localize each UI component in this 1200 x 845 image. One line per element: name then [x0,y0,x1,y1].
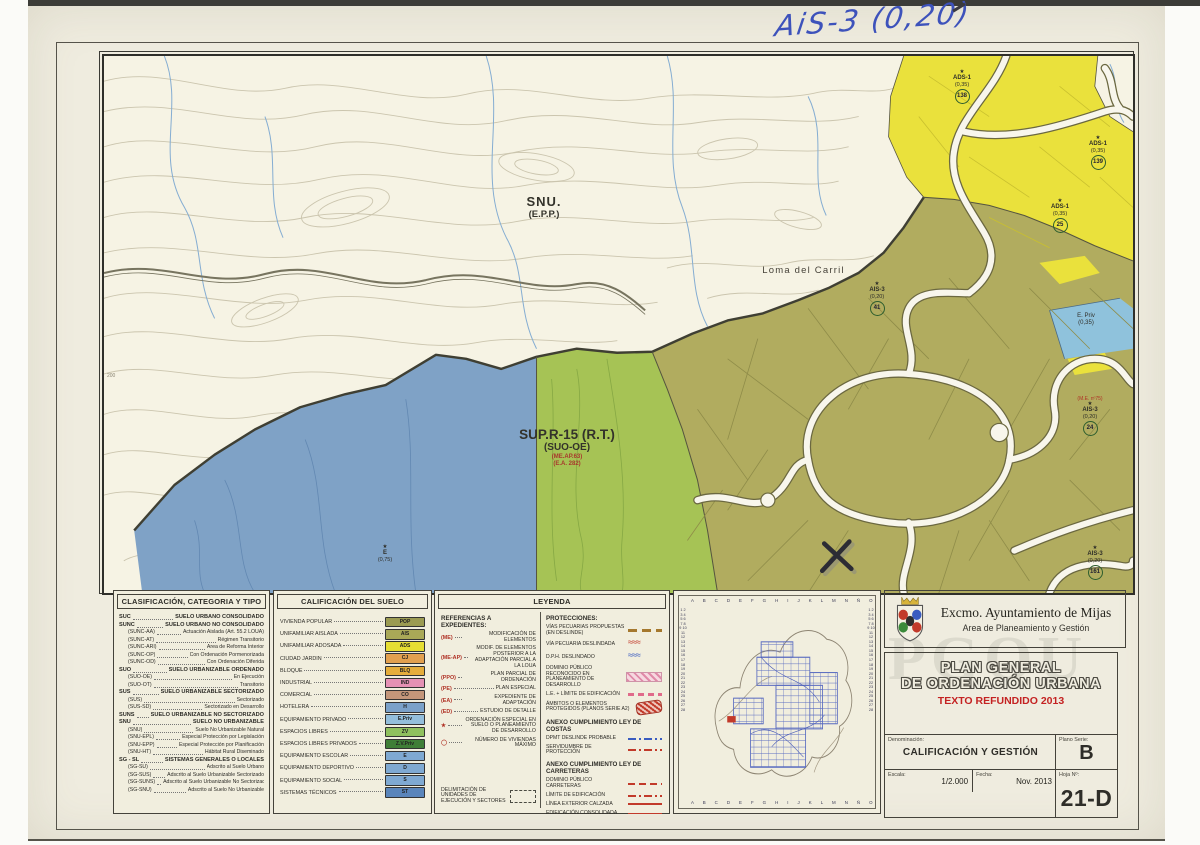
calificacion-row: UNIFAMILIAR AISLADA AIS [280,628,425,640]
clasificacion-row: (SUS) Sectorizado [119,697,264,705]
clasificacion-row: (SUO-OE) En Ejecución [119,674,264,682]
dotted-leader [449,742,462,743]
line-symbol [628,795,662,797]
referencia-label: EXPEDIENTE DE ADAPTACIÓN [464,695,536,707]
dotted-leader [348,718,383,719]
proteccion-label: D.P.H. DESLINDADO [546,655,625,661]
zone-marker: ★ AIS-3 (0,20) 41 [855,282,899,316]
clasificacion-code: SUNC [119,622,135,630]
referencia-label: MODIF. DE ELEMENTOS POSTERIOR A LA ADAPT… [470,646,536,669]
calificacion-row: UNIFAMILIAR ADOSADA ADS [280,640,425,652]
carreteras-label: LÍMITE DE EDIFICACIÓN [546,793,625,799]
index-map-rows-left: 1 2 3 4 5 6 7 8 9 10 11 12 13 14 15 16 1… [679,606,687,798]
color-swatch: CJ [385,653,425,664]
proteccion-row: D.P.H. DESLINDADO [546,653,662,663]
referencia-row: (ED) ESTUDIO DE DETALLE [441,709,536,715]
zone-marker-ratio: (0,35) [940,82,984,88]
dashed-box-symbol [510,790,536,803]
color-swatch: CO [385,690,425,701]
dotted-leader [141,762,163,763]
calificacion-row: INDUSTRIAL IND [280,677,425,689]
dotted-leader [133,619,173,620]
zone-marker-dwelling-count: 41 [870,301,885,316]
color-swatch: D [385,763,425,774]
plano-serie-cell: Plano Serie: B [1055,734,1117,770]
index-map-inner: A B C D E F G H I J K L M N Ñ O P 1 2 3 … [678,595,876,809]
clasificacion-label: Sectorizado en Desarrollo [204,704,264,712]
referencia-row: ★ ORDENACIÓN ESPECIAL EN SUELO O PLANEAM… [441,718,536,735]
clasificacion-code: (SUS-SD) [128,704,151,712]
clasificacion-row: SUNC SUELO URBANO NO CONSOLIDADO [119,622,264,630]
dotted-leader [454,699,462,700]
clasificacion-label: SUELO URBANIZABLE ORDENADO [169,667,264,675]
dotted-leader [454,688,494,689]
line-symbol [628,653,662,663]
proteccion-row: L.E. + LÍMITE DE EDIFICACIÓN [546,692,662,698]
clasificacion-code: SUO [119,667,131,675]
referencia-code: (ED) [441,709,452,715]
dotted-leader [156,642,215,643]
proteccion-label: DOMINIO PÚBLICO RECONOCIDO EN PLANEAMIEN… [546,666,623,689]
clasificacion-code: (SUNC-ARI) [128,644,157,652]
dotted-leader [158,664,205,665]
referencia-row: (PE) PLAN ESPECIAL [441,686,536,692]
clasificacion-row: (SUNC-OP) Con Ordenación Pormenorizada [119,652,264,660]
dotted-leader [455,637,462,638]
calificacion-list: VIVIENDA POPULAR POP UNIFAMILIAR AISLADA… [274,612,431,799]
dotted-leader [340,633,383,634]
dotted-leader [157,657,187,658]
proteccion-row: VÍA PECUARIA DESLINDADA [546,640,662,650]
clasificacion-label: SISTEMAS GENERALES O LOCALES [165,757,264,765]
clasificacion-code: (SUO-OT) [128,682,152,690]
clasificacion-code: (SUNC-OP) [128,652,155,660]
carreteras-list: DOMINIO PÚBLICO CARRETERAS LÍMITE DE EDI… [546,778,662,816]
color-swatch: E [385,751,425,762]
referencia-label: MODIFICACIÓN DE ELEMENTOS [464,632,536,644]
clasificacion-label: SUELO NO URBANIZABLE [193,719,264,727]
clasificacion-row: (SUS-SD) Sectorizado en Desarrollo [119,704,264,712]
map-graphics [104,56,1133,593]
clasificacion-code: (SUNC-OD) [128,659,156,667]
hoja-value: 21-D [1056,785,1117,812]
referencia-label: ESTUDIO DE DETALLE [480,709,536,715]
color-swatch: IND [385,678,425,689]
zone-marker-ratio: (0,20) [1068,414,1112,420]
dotted-leader [324,657,383,658]
clasificacion-code: SUNS [119,712,135,720]
carreteras-label: DOMINIO PÚBLICO CARRETERAS [546,778,625,789]
costas-row: SERVIDUMBRE DE PROTECCIÓN [546,745,662,756]
denominacion-cell: Denominación: CALIFICACIÓN Y GESTIÓN [885,734,1056,770]
hoja-label: Hoja Nº: [1056,770,1117,778]
calificacion-row: SISTEMAS TÉCNICOS ST [280,787,425,799]
delimitacion-label: DELIMITACIÓN DE UNIDADES DE EJECUCIÓN Y … [441,788,507,805]
dotted-leader [464,657,468,658]
dotted-leader [359,743,383,744]
index-grid-cells [734,642,838,767]
dotted-leader [350,755,383,756]
costas-label: DPMT DESLINDE PROBABLE [546,736,625,742]
clasificacion-label: Adscrito al Suelo Urbanizable No Sectori… [163,779,264,787]
calificacion-row: EQUIPAMIENTO ESCOLAR E [280,750,425,762]
color-swatch: H [385,702,425,713]
dotted-leader [153,754,203,755]
dotted-leader [150,769,205,770]
clasificacion-code: (SNU-EPL) [128,734,154,742]
dotted-leader [154,792,186,793]
referencia-row: ◯ NÚMERO DE VIVIENDAS MÁXIMO [441,738,536,750]
dotted-leader [454,711,478,712]
index-map-letters-bottom: A B C D E F G H I J K L M N Ñ O P [679,798,875,808]
proteccion-row: DOMINIO PÚBLICO RECONOCIDO EN PLANEAMIEN… [546,666,662,689]
dotted-leader [133,724,191,725]
calificacion-label: EQUIPAMIENTO DEPORTIVO [280,765,354,771]
fecha-value: Nov. 2013 [1016,777,1052,786]
calificacion-row: ESPACIOS LIBRES PRIVADOS Z.V.Priv [280,738,425,750]
referencia-code: (PE) [441,686,452,692]
line-symbol [628,803,662,805]
panel-leyenda-title: LEYENDA [438,594,666,609]
clasificacion-row: SG - SL SISTEMAS GENERALES O LOCALES [119,757,264,765]
zone-marker-dwelling-count: 139 [1091,155,1106,170]
line-symbol [626,672,662,682]
dotted-leader [314,682,383,683]
label-contour-elevation: 200 [107,373,127,379]
color-swatch: AIS [385,629,425,640]
zone-marker-ratio: (0,35) [1076,148,1120,154]
dotted-leader [154,679,232,680]
line-symbol [628,749,662,751]
calificacion-label: CIUDAD JARDIN [280,656,322,662]
dotted-leader [157,747,177,748]
plano-serie-value: B [1056,743,1117,763]
dotted-leader [330,731,383,732]
clasificacion-code: SUC [119,614,131,622]
calificacion-label: UNIFAMILIAR ADOSADA [280,643,341,649]
line-symbol [628,693,662,696]
denominacion-value: CALIFICACIÓN Y GESTIÓN [885,747,1056,758]
panel-index-map: A B C D E F G H I J K L M N Ñ O P 1 2 3 … [673,590,881,814]
label-sup-ref2: (E.A. 282) [501,461,633,468]
costas-row: DPMT DESLINDE PROBABLE [546,736,662,742]
label-epriv-code: E. Priv [1057,313,1115,320]
proteccion-label: L.E. + LÍMITE DE EDIFICACIÓN [546,692,625,698]
clasificacion-row: (SUNC-AT) Régimen Transitorio [119,637,264,645]
index-map-letters-top: A B C D E F G H I J K L M N Ñ O P [679,596,875,606]
proteccion-label: ÁMBITOS O ELEMENTOS PROTEGIDOS (PLANOS S… [546,702,633,713]
clasificacion-label: SUELO URBANO CONSOLIDADO [175,614,264,622]
calificacion-label: EQUIPAMIENTO SOCIAL [280,778,342,784]
referencia-row: (ME) MODIFICACIÓN DE ELEMENTOS [441,632,536,644]
clasificacion-row: (SUNC-AA) Actuación Aislada (Art. 55.2 L… [119,629,264,637]
calificacion-label: ESPACIOS LIBRES PRIVADOS [280,741,357,747]
referencia-code: (ME-AP) [441,655,462,661]
organization-dept: Area de Planeamiento y Gestión [931,623,1121,633]
clasificacion-label: SUELO URBANIZABLE NO SECTORIZADO [151,712,264,720]
dotted-leader [334,621,383,622]
proteccion-row: ÁMBITOS O ELEMENTOS PROTEGIDOS (PLANOS S… [546,701,662,714]
dotted-leader [458,677,462,678]
referencias-heading: REFERENCIAS A EXPEDIENTES: [441,615,536,629]
line-symbol [628,629,662,633]
dotted-leader [133,672,166,673]
clasificacion-row: SNU SUELO NO URBANIZABLE [119,719,264,727]
zone-marker-dwelling-count: 138 [955,89,970,104]
panel-clasificacion: CLASIFICACIÓN, CATEGORIA Y TIPO SUC SUEL… [113,590,270,814]
line-symbol [635,699,663,715]
clasificacion-label: Hábitat Rural Diseminado [205,749,264,757]
hoja-cell: Hoja Nº: 21-D [1055,769,1117,818]
clasificacion-row: SUC SUELO URBANO CONSOLIDADO [119,614,264,622]
protecciones-heading: PROTECCIONES: [546,615,662,622]
line-symbol [628,813,662,814]
referencia-code: (PPO) [441,675,456,681]
referencia-label: PLAN ESPECIAL [496,686,536,692]
clasificacion-row: SUS SUELO URBANIZABLE SECTORIZADO [119,689,264,697]
clasificacion-label: Con Ordenación Diferida [207,659,264,667]
dotted-leader [157,784,161,785]
clasificacion-code: (SNU) [128,727,142,735]
carreteras-row: LÍMITE DE EDIFICACIÓN [546,793,662,799]
dotted-leader [304,670,383,671]
calificacion-row: EQUIPAMIENTO PRIVADO E.Priv [280,714,425,726]
calificacion-label: HOTELERA [280,704,309,710]
clasificacion-code: (SUNC-AA) [128,629,155,637]
title-block: PGOU Excmo. Ayuntamiento de Mijas Area d… [884,590,1118,818]
costas-list: DPMT DESLINDE PROBABLE SERVIDUMBRE DE PR… [546,736,662,756]
clasificacion-code: (SUO-OE) [128,674,152,682]
clasificacion-code: SNU [119,719,131,727]
clasificacion-label: SUELO URBANIZABLE SECTORIZADO [161,689,264,697]
clasificacion-code: (SG-SNU) [128,787,152,795]
clasificacion-label: Sectorizado [237,697,264,705]
coat-of-arms [889,595,931,643]
dotted-leader [153,777,165,778]
clasificacion-row: SUO SUELO URBANIZABLE ORDENADO [119,667,264,675]
zone-marker-dwelling-count: 24 [1083,421,1098,436]
color-swatch: ADS [385,641,425,652]
clasificacion-label: Con Ordenación Pormenorizada [190,652,264,660]
calificacion-row: BLOQUE BLQ [280,665,425,677]
clasificacion-row: (SNU-EPL) Especial Protección por Legisl… [119,734,264,742]
zone-marker-ratio: (0,20) [1073,558,1117,564]
clasificacion-row: (SG-SU) Adscrito al Suelo Urbano [119,764,264,772]
clasificacion-code: (SG-SUNS) [128,779,155,787]
referencia-row: (ME-AP) MODIF. DE ELEMENTOS POSTERIOR A … [441,646,536,669]
clasificacion-code: (SNU-HT) [128,749,151,757]
color-swatch: ST [385,787,425,798]
zone-marker: (M.E. nº75) ★ AIS-3 (0,20) 24 [1068,396,1112,436]
clasificacion-label: Adscrito al Suelo Urbano [207,764,264,772]
dotted-leader [344,779,383,780]
calificacion-label: ESPACIOS LIBRES [280,729,328,735]
clasificacion-row: (SUNC-OD) Con Ordenación Diferida [119,659,264,667]
label-snu-code: SNU. [499,195,589,209]
clasificacion-row: (SUO-OT) Transitorio [119,682,264,690]
line-symbol [628,738,662,740]
zone-marker: ★ ADS-1 (0,35) 25 [1038,199,1082,233]
panel-leyenda: LEYENDA REFERENCIAS A EXPEDIENTES: (ME) … [434,590,670,814]
escala-cell: Escala: 1/2.000 [885,770,973,792]
dotted-leader [448,725,462,726]
zone-marker: ★ AIS-3 (0,20) 161 [1073,546,1117,580]
map-sheet: SNU. (E.P.P.) Loma del Carril SUP.R-15 (… [28,6,1165,841]
dotted-leader [159,649,205,650]
plan-title-line2: DE ORDENACIÓN URBANA [885,676,1117,692]
clasificacion-label: Especial Protección por Planificación [179,742,264,750]
label-sup-r15: SUP.R-15 (R.T.) (SUO-OE) (ME.AP.63) (E.A… [501,427,633,468]
carreteras-row: EDIFICACIÓN CONSOLIDADA [546,811,662,817]
title-block-header: Excmo. Ayuntamiento de Mijas Area de Pla… [884,590,1126,648]
map-canvas: SNU. (E.P.P.) Loma del Carril SUP.R-15 (… [102,54,1135,595]
dotted-leader [311,706,383,707]
zone-marker-ratio: (0,75) [363,557,407,563]
clasificacion-code: (SG-SUS) [128,772,151,780]
calificacion-row: COMERCIAL CO [280,689,425,701]
clasificacion-code: (SNU-EPP) [128,742,155,750]
fecha-cell: Fecha: Nov. 2013 [973,770,1056,792]
dotted-leader [133,694,159,695]
costas-heading: ANEXO CUMPLIMIENTO LEY DE COSTAS [546,719,662,733]
referencia-label: NÚMERO DE VIVIENDAS MÁXIMO [464,738,536,750]
clasificacion-row: (SNU-HT) Hábitat Rural Diseminado [119,749,264,757]
calificacion-label: COMERCIAL [280,692,312,698]
protecciones-list: VÍAS PECUARIAS PROPUESTAS (EN DESLINDE) … [546,625,662,714]
zone-marker: ★ E (0,75) [363,545,407,563]
line-symbol [628,640,662,650]
clasificacion-label: Suelo No Urbanizable Natural [195,727,264,735]
color-swatch: S [385,775,425,786]
zone-marker-ratio: (0,35) [1038,211,1082,217]
clasificacion-label: En Ejecución [234,674,264,682]
clasificacion-code: (SUS) [128,697,142,705]
clasificacion-code: (SG-SU) [128,764,148,772]
calificacion-label: EQUIPAMIENTO ESCOLAR [280,753,348,759]
panel-clasificacion-title: CLASIFICACIÓN, CATEGORIA Y TIPO [117,594,266,609]
dotted-leader [137,717,149,718]
proteccion-label: VÍAS PECUARIAS PROPUESTAS (EN DESLINDE) [546,625,625,636]
zone-marker-dwelling-count: 25 [1053,218,1068,233]
calificacion-row: VIVIENDA POPULAR POP [280,616,425,628]
calificacion-row: EQUIPAMIENTO SOCIAL S [280,774,425,786]
costas-label: SERVIDUMBRE DE PROTECCIÓN [546,745,625,756]
title-block-main: PLAN GENERAL DE ORDENACIÓN URBANA TEXTO … [884,652,1118,818]
calificacion-row: HOTELERA H [280,701,425,713]
referencias-list: (ME) MODIFICACIÓN DE ELEMENTOS (ME-AP) M… [441,632,536,752]
escala-value: 1/2.000 [941,777,968,786]
clasificacion-label: SUELO URBANO NO CONSOLIDADO [165,622,264,630]
clasificacion-row: SUNS SUELO URBANIZABLE NO SECTORIZADO [119,712,264,720]
clasificacion-label: Transitorio [240,682,264,690]
zone-marker: ★ ADS-1 (0,35) 138 [940,70,984,104]
referencia-code: ◯ [441,740,447,746]
clasificacion-label: Adscrito al Suelo No Urbanizable [188,787,264,795]
line-symbol [628,783,662,786]
leyenda-protecciones: PROTECCIONES: VÍAS PECUARIAS PROPUESTAS … [540,612,665,808]
calificacion-row: EQUIPAMIENTO DEPORTIVO D [280,762,425,774]
calificacion-label: VIVIENDA POPULAR [280,619,332,625]
clasificacion-code: SG - SL [119,757,139,765]
panel-calificacion: CALIFICACIÓN DEL SUELO VIVIENDA POPULAR … [273,590,432,814]
label-sup-class: (SUO-OE) [501,442,633,454]
calificacion-label: UNIFAMILIAR AISLADA [280,631,338,637]
index-map-rows-right: 1 2 3 4 5 6 7 8 9 10 11 12 13 14 15 16 1… [867,606,875,798]
color-swatch: E.Priv [385,714,425,725]
dotted-leader [137,627,163,628]
color-swatch: Z.V.Priv [385,739,425,750]
referencia-label: PLAN PARCIAL DE ORDENACIÓN [464,672,536,684]
plan-title-line1: PLAN GENERAL [885,660,1117,676]
calificacion-row: CIUDAD JARDIN CJ [280,653,425,665]
clasificacion-label: Actuación Aislada (Art. 55.2 LOUA) [183,629,264,637]
referencia-row: (PPO) PLAN PARCIAL DE ORDENACIÓN [441,672,536,684]
label-epriv: E. Priv (0,35) [1057,313,1115,327]
carreteras-label: LÍNEA EXTERIOR CALZADA [546,802,625,808]
clasificacion-list: SUC SUELO URBANO CONSOLIDADO SUNC SUELO … [114,612,269,794]
delimitacion-row: DELIMITACIÓN DE UNIDADES DE EJECUCIÓN Y … [441,788,536,805]
proteccion-label: VÍA PECUARIA DESLINDADA [546,642,625,648]
clasificacion-code: (SUNC-AT) [128,637,154,645]
carreteras-heading: ANEXO CUMPLIMIENTO LEY DE CARRETERAS [546,761,662,775]
clasificacion-code: SUS [119,689,131,697]
panel-calificacion-title: CALIFICACIÓN DEL SUELO [277,594,428,609]
color-swatch: POP [385,617,425,628]
label-snu-category: (E.P.P.) [499,209,589,220]
label-sup-ref1: (ME.AP.63) [501,454,633,461]
label-loma-del-carril: Loma del Carril [746,265,861,276]
clasificacion-row: (SG-SUS) Adscrito al Suelo Urbanizable S… [119,772,264,780]
clasificacion-row: (SNU) Suelo No Urbanizable Natural [119,727,264,735]
dotted-leader [144,732,193,733]
dotted-leader [356,767,383,768]
dotted-leader [339,791,383,792]
zone-marker-ratio: (0,20) [855,294,899,300]
referencia-code: (ME) [441,635,453,641]
label-sup-code: SUP.R-15 (R.T.) [501,427,633,442]
zone-marker: ★ ADS-1 (0,35) 139 [1076,136,1120,170]
referencia-code: ★ [441,723,446,729]
carreteras-label: EDIFICACIÓN CONSOLIDADA [546,811,625,817]
dotted-leader [154,687,238,688]
dotted-leader [157,634,181,635]
dotted-leader [343,645,383,646]
label-epriv-ratio: (0,35) [1057,320,1115,327]
calificacion-label: EQUIPAMIENTO PRIVADO [280,717,346,723]
track-line [104,269,645,315]
current-sheet-cell [727,716,735,722]
color-swatch: BLQ [385,666,425,677]
clasificacion-row: (SG-SNU) Adscrito al Suelo No Urbanizabl… [119,787,264,795]
color-swatch: ZV [385,727,425,738]
clasificacion-row: (SUNC-ARI) Área de Reforma Interior [119,644,264,652]
dotted-leader [314,694,383,695]
carreteras-row: DOMINIO PÚBLICO CARRETERAS [546,778,662,789]
calificacion-label: BLOQUE [280,668,302,674]
leyenda-referencias: REFERENCIAS A EXPEDIENTES: (ME) MODIFICA… [439,612,540,808]
organization-name: Excmo. Ayuntamiento de Mijas [931,605,1121,621]
plan-subtitle: TEXTO REFUNDIDO 2013 [885,695,1117,707]
denominacion-label: Denominación: [885,735,1056,743]
clasificacion-label: Régimen Transitorio [218,637,264,645]
dotted-leader [156,739,180,740]
calificacion-row: ESPACIOS LIBRES ZV [280,726,425,738]
clasificacion-label: Especial Protección por Legislación [182,734,264,742]
label-snu: SNU. (E.P.P.) [499,195,589,220]
referencia-label: ORDENACIÓN ESPECIAL EN SUELO O PLANEAMIE… [464,718,536,735]
zone-marker-dwelling-count: 161 [1088,565,1103,580]
proteccion-row: VÍAS PECUARIAS PROPUESTAS (EN DESLINDE) [546,625,662,636]
